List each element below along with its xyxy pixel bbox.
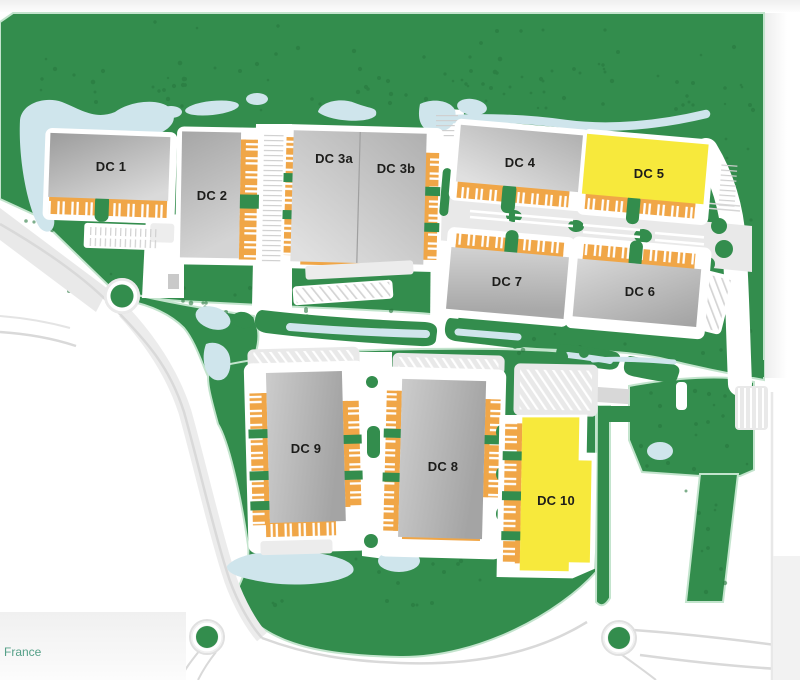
svg-text:DC 10: DC 10 bbox=[537, 493, 575, 508]
svg-text:DC 6: DC 6 bbox=[625, 284, 655, 299]
svg-text:DC 9: DC 9 bbox=[291, 441, 321, 456]
svg-text:DC 5: DC 5 bbox=[634, 166, 664, 181]
svg-text:DC 1: DC 1 bbox=[96, 159, 126, 174]
svg-text:DC 4: DC 4 bbox=[505, 155, 536, 170]
svg-text:France: France bbox=[4, 645, 42, 659]
svg-text:DC 7: DC 7 bbox=[492, 274, 522, 289]
svg-text:DC 3a: DC 3a bbox=[315, 151, 353, 166]
svg-text:DC 2: DC 2 bbox=[197, 188, 227, 203]
svg-text:DC 3b: DC 3b bbox=[377, 161, 416, 176]
svg-text:DC 8: DC 8 bbox=[428, 459, 458, 474]
